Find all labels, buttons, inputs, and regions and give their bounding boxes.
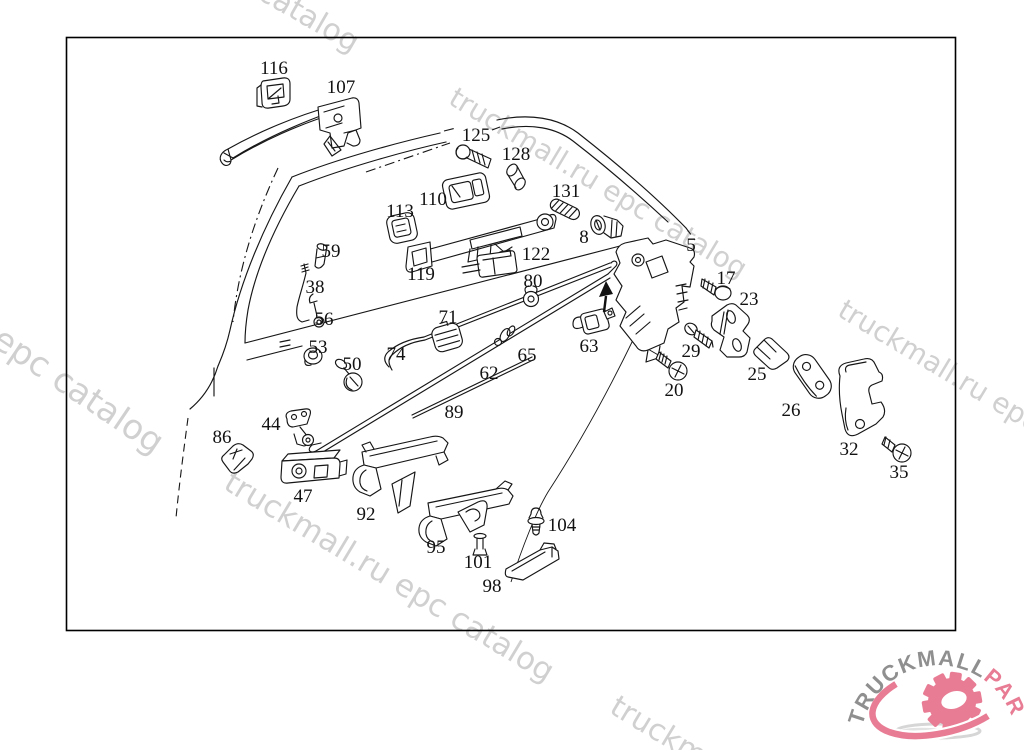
- part-98-trim-wedge: [505, 543, 559, 580]
- part-35-screw: [882, 437, 911, 462]
- part-label-59[interactable]: 59: [322, 241, 341, 262]
- part-63-switch: [573, 308, 615, 335]
- part-110-handle-base: [441, 172, 490, 210]
- part-128-bushing: [505, 162, 528, 192]
- part-label-47[interactable]: 47: [294, 486, 313, 507]
- part-104-plug: [528, 508, 544, 535]
- part-label-53[interactable]: 53: [309, 337, 328, 358]
- part-65-bushing: [495, 325, 517, 346]
- watermark-text: truckmall.ru epc catalog: [0, 197, 171, 462]
- part-label-25[interactable]: 25: [748, 364, 767, 385]
- part-8-lock-cylinder: [589, 214, 623, 238]
- parts-diagram-page: truckmall.ru epc catalogtruckmall.ru epc…: [0, 0, 1024, 750]
- part-label-44[interactable]: 44: [262, 414, 282, 435]
- part-86-clip: [222, 444, 254, 473]
- part-label-5[interactable]: 5: [686, 235, 696, 256]
- part-label-125[interactable]: 125: [462, 125, 491, 146]
- part-23-striker: [711, 304, 750, 357]
- part-label-29[interactable]: 29: [682, 341, 701, 362]
- part-label-74[interactable]: 74: [387, 344, 407, 365]
- part-26-shim-plate: [789, 350, 836, 402]
- part-label-65[interactable]: 65: [518, 345, 537, 366]
- part-label-86[interactable]: 86: [213, 427, 232, 448]
- part-label-122[interactable]: 122: [522, 244, 551, 265]
- part-label-131[interactable]: 131: [552, 181, 581, 202]
- part-label-104[interactable]: 104: [548, 515, 577, 536]
- part-label-101[interactable]: 101: [464, 552, 493, 573]
- part-label-26[interactable]: 26: [782, 400, 801, 421]
- part-label-128[interactable]: 128: [502, 144, 531, 165]
- part-32-bracket-cover: [839, 359, 885, 436]
- part-125-screw: [456, 145, 491, 168]
- part-label-50[interactable]: 50: [343, 354, 362, 375]
- part-label-17[interactable]: 17: [717, 268, 736, 289]
- part-label-107[interactable]: 107: [327, 77, 356, 98]
- part-label-20[interactable]: 20: [665, 380, 684, 401]
- part-label-80[interactable]: 80: [524, 271, 543, 292]
- part-label-32[interactable]: 32: [840, 439, 859, 460]
- watermark-text: truckmall.ru epc catalog: [31, 0, 365, 60]
- part-label-95[interactable]: 95: [427, 537, 446, 558]
- part-label-92[interactable]: 92: [357, 504, 376, 525]
- part-label-62[interactable]: 62: [480, 363, 499, 384]
- part-107-outside-door-handle: [220, 98, 361, 166]
- part-122-connector: [462, 250, 517, 278]
- part-47-inner-handle-bezel: [281, 450, 347, 483]
- part-116-drawing: [257, 78, 290, 108]
- part-label-71[interactable]: 71: [439, 307, 458, 328]
- exploded-parts-diagram: truckmall.ru epc catalogtruckmall.ru epc…: [0, 0, 1024, 750]
- part-label-98[interactable]: 98: [483, 576, 502, 597]
- part-label-56[interactable]: 56: [315, 309, 334, 330]
- part-label-116[interactable]: 116: [260, 58, 288, 79]
- part-label-38[interactable]: 38: [306, 277, 325, 298]
- part-44-lever: [286, 409, 313, 446]
- assembly-direction-arrow: [599, 281, 613, 312]
- part-label-23[interactable]: 23: [740, 289, 759, 310]
- part-label-35[interactable]: 35: [890, 462, 909, 483]
- part-label-113[interactable]: 113: [386, 201, 414, 222]
- part-label-89[interactable]: 89: [445, 402, 464, 423]
- part-label-119[interactable]: 119: [407, 264, 435, 285]
- part-label-63[interactable]: 63: [580, 336, 599, 357]
- part-label-8[interactable]: 8: [579, 227, 589, 248]
- part-label-110[interactable]: 110: [419, 189, 447, 210]
